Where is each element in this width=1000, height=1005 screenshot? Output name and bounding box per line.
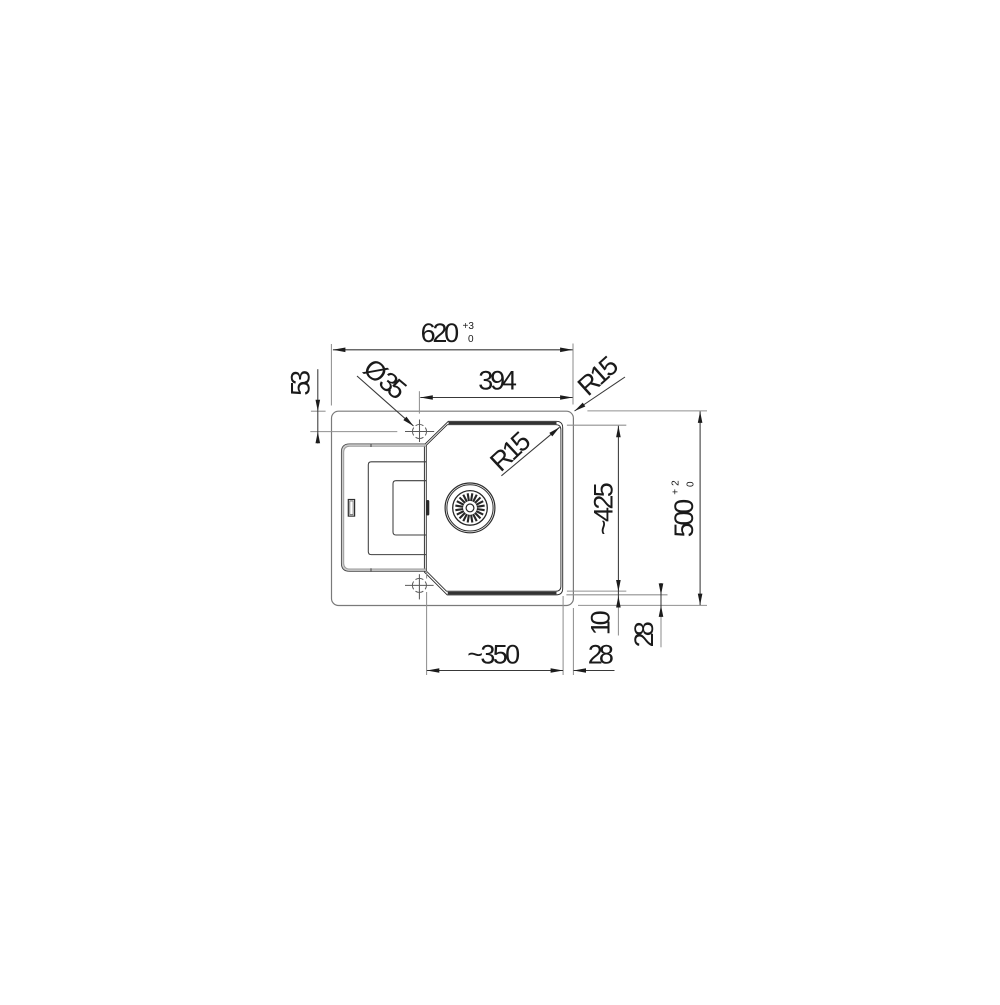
svg-text:~350: ~350 — [467, 639, 520, 669]
svg-text:28: 28 — [588, 640, 614, 670]
svg-text:0: 0 — [685, 481, 696, 487]
svg-text:53: 53 — [285, 370, 315, 396]
svg-text:620: 620 — [421, 318, 460, 348]
svg-text:+3: +3 — [463, 321, 475, 332]
svg-text:10: 10 — [586, 610, 616, 635]
svg-text:394: 394 — [478, 365, 517, 395]
svg-text:28: 28 — [629, 621, 659, 647]
svg-text:~425: ~425 — [588, 482, 618, 535]
svg-text:500: 500 — [669, 499, 699, 538]
svg-text:0: 0 — [468, 334, 474, 345]
